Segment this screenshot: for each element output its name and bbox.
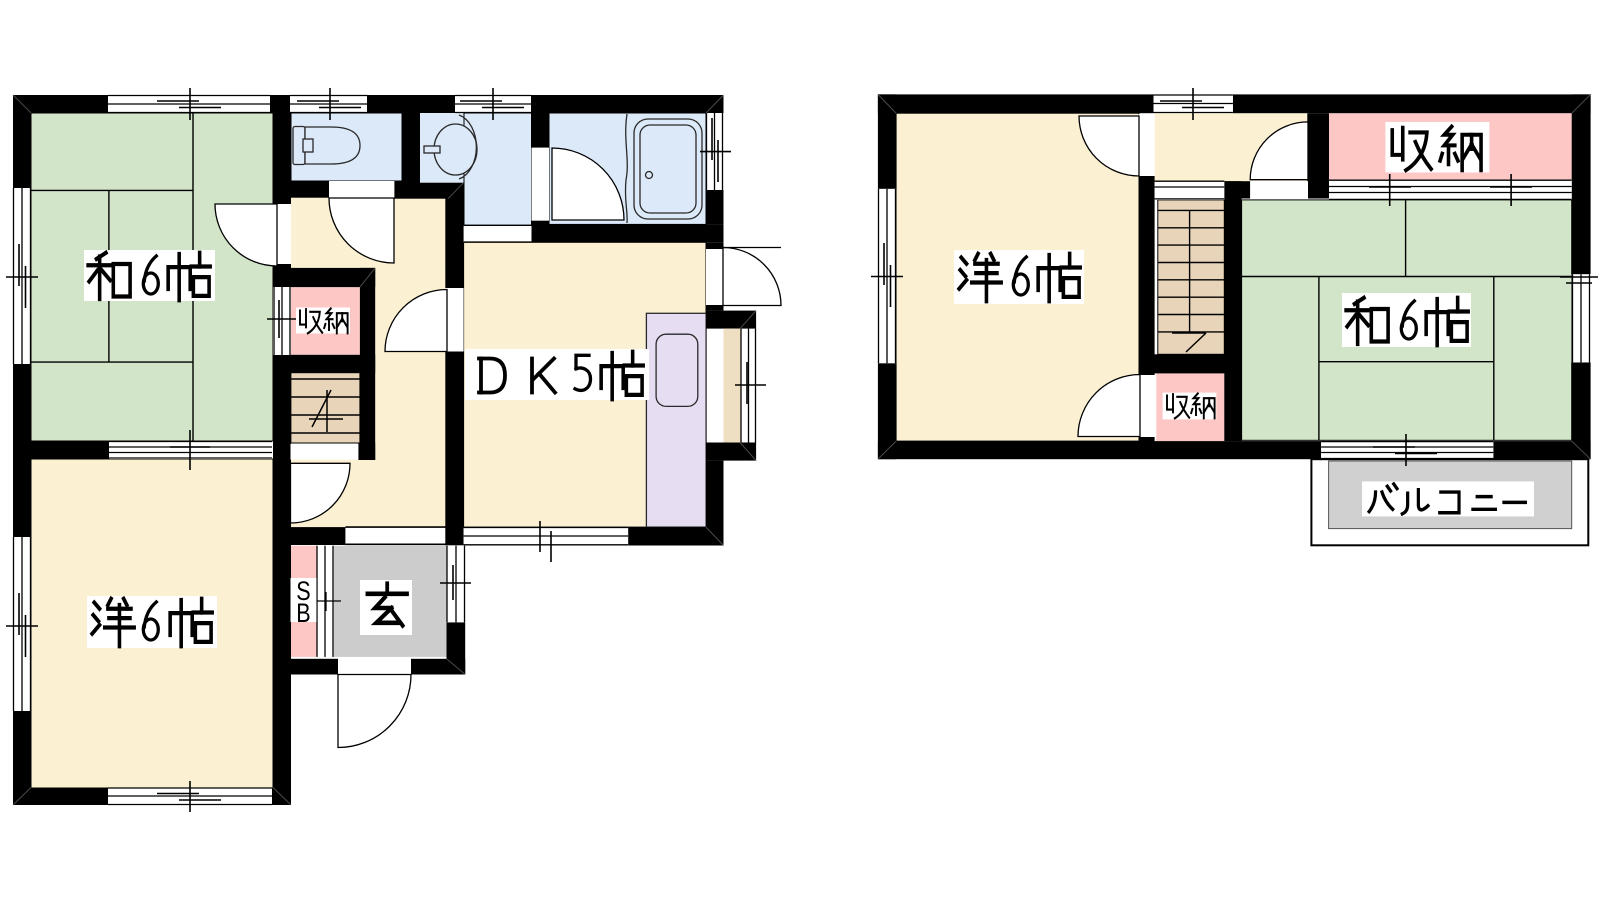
svg-text:B: B [296,599,310,629]
